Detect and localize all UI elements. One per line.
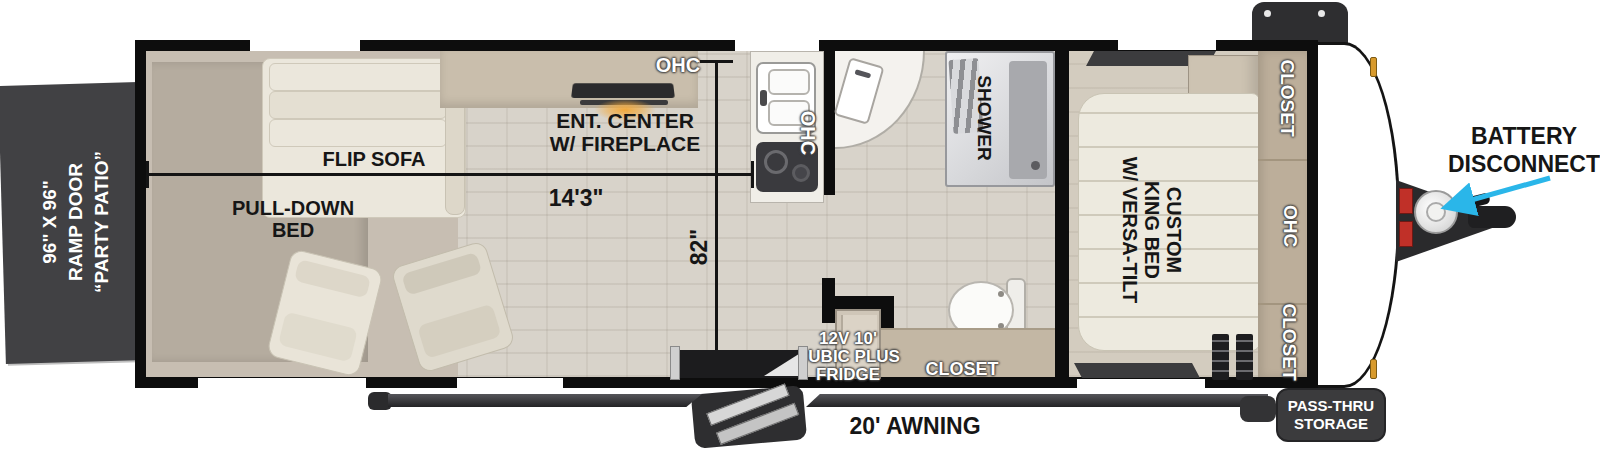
flip-sofa (262, 58, 466, 218)
window-gap (1118, 40, 1216, 50)
shower (945, 51, 1055, 187)
ohc-top-label: OHC (656, 55, 700, 76)
dim-height-label: 82" (687, 229, 712, 266)
ent-center-label: ENT. CENTER W/ FIREPLACE (550, 109, 701, 155)
bed-line1: CUSTOM (1163, 157, 1185, 303)
pass-thru-label: PASS-THRU STORAGE (1288, 397, 1374, 433)
bedroom-ohc-label: OHC (1280, 205, 1300, 247)
entry-step-well (676, 350, 806, 378)
bed-step (1236, 334, 1253, 380)
awning-bar-right (806, 394, 1268, 407)
bed-step (1212, 334, 1229, 380)
bath-closet-label: CLOSET (925, 360, 998, 379)
jack-foot (1240, 396, 1276, 422)
awning-label: 20' AWNING (849, 414, 980, 439)
bedroom-window-shade-bottom (1074, 363, 1200, 378)
dim-tick (751, 161, 754, 188)
closet-top-label: CLOSET (1277, 59, 1297, 136)
wall-bedroom-left (1055, 45, 1069, 381)
door-post (670, 346, 680, 380)
pass-thru-badge: PASS-THRU STORAGE (1276, 388, 1386, 442)
awning-bar-left (388, 394, 702, 407)
window-gap (1077, 379, 1205, 388)
dim-line-width (147, 173, 753, 176)
front-cap (1318, 42, 1400, 388)
fridge-line1: 12V 10' (796, 330, 900, 348)
battery-disconnect-arrow-icon (1432, 170, 1558, 220)
window-gap (457, 378, 563, 388)
bed-line3: W/ VERSA-TILT (1119, 157, 1141, 303)
shower-label: SHOWER (974, 75, 995, 161)
pass-thru-line1: PASS-THRU (1288, 397, 1374, 415)
pass-thru-line2: STORAGE (1288, 415, 1374, 433)
bath-sink-unit (833, 57, 884, 125)
dim-tick (700, 60, 733, 63)
fireplace (571, 83, 675, 98)
king-bed-label: CUSTOM KING BED W/ VERSA-TILT (1119, 157, 1185, 303)
marker-light (1370, 359, 1377, 379)
pdb-line1: PULL-DOWN (232, 197, 354, 219)
step-well-wedge (764, 352, 802, 376)
ent-line2: W/ FIREPLACE (550, 132, 701, 155)
entry-steps (691, 385, 807, 449)
battery-box (1399, 221, 1413, 247)
ramp-door-line3: “PARTY PATIO” (89, 151, 115, 293)
window-gap (250, 40, 360, 51)
ent-line1: ENT. CENTER (550, 109, 701, 132)
window-gap (198, 378, 366, 388)
door-post (798, 346, 808, 380)
bed-line2: KING BED (1141, 157, 1163, 303)
rv-floorplan: 96" X 96" RAMP DOOR “PARTY PATIO” (0, 0, 1600, 450)
dim-line-height (715, 60, 718, 354)
flip-sofa-label: FLIP SOFA (323, 149, 426, 171)
fridge-line3: FRIDGE (796, 366, 900, 384)
dim-width-label: 14'3" (549, 186, 604, 211)
window-gap (735, 40, 819, 51)
dim-tick (146, 161, 149, 188)
ohc-kitchen-label: OHC (796, 111, 817, 155)
shower-floor (1009, 61, 1047, 179)
battery-box (1399, 188, 1413, 214)
fridge-label: 12V 10' CUBIC PLUS FRIDGE (796, 330, 900, 384)
screw-dot (1264, 10, 1271, 17)
screw-dot (1318, 10, 1325, 17)
pull-down-bed-label: PULL-DOWN BED (232, 197, 354, 241)
closet-bottom-label: CLOSET (1279, 303, 1299, 380)
fridge-line2: CUBIC PLUS (796, 348, 900, 366)
sink-bowl (768, 69, 810, 95)
faucet (760, 90, 767, 106)
ramp-door-line1: 96" X 96" (37, 151, 63, 293)
ramp-door-label: 96" X 96" RAMP DOOR “PARTY PATIO” (37, 151, 115, 293)
battery-line1: BATTERY (1448, 122, 1600, 150)
marker-light (1370, 57, 1377, 77)
pdb-line2: BED (232, 219, 354, 241)
ramp-door-line2: RAMP DOOR (63, 151, 89, 293)
